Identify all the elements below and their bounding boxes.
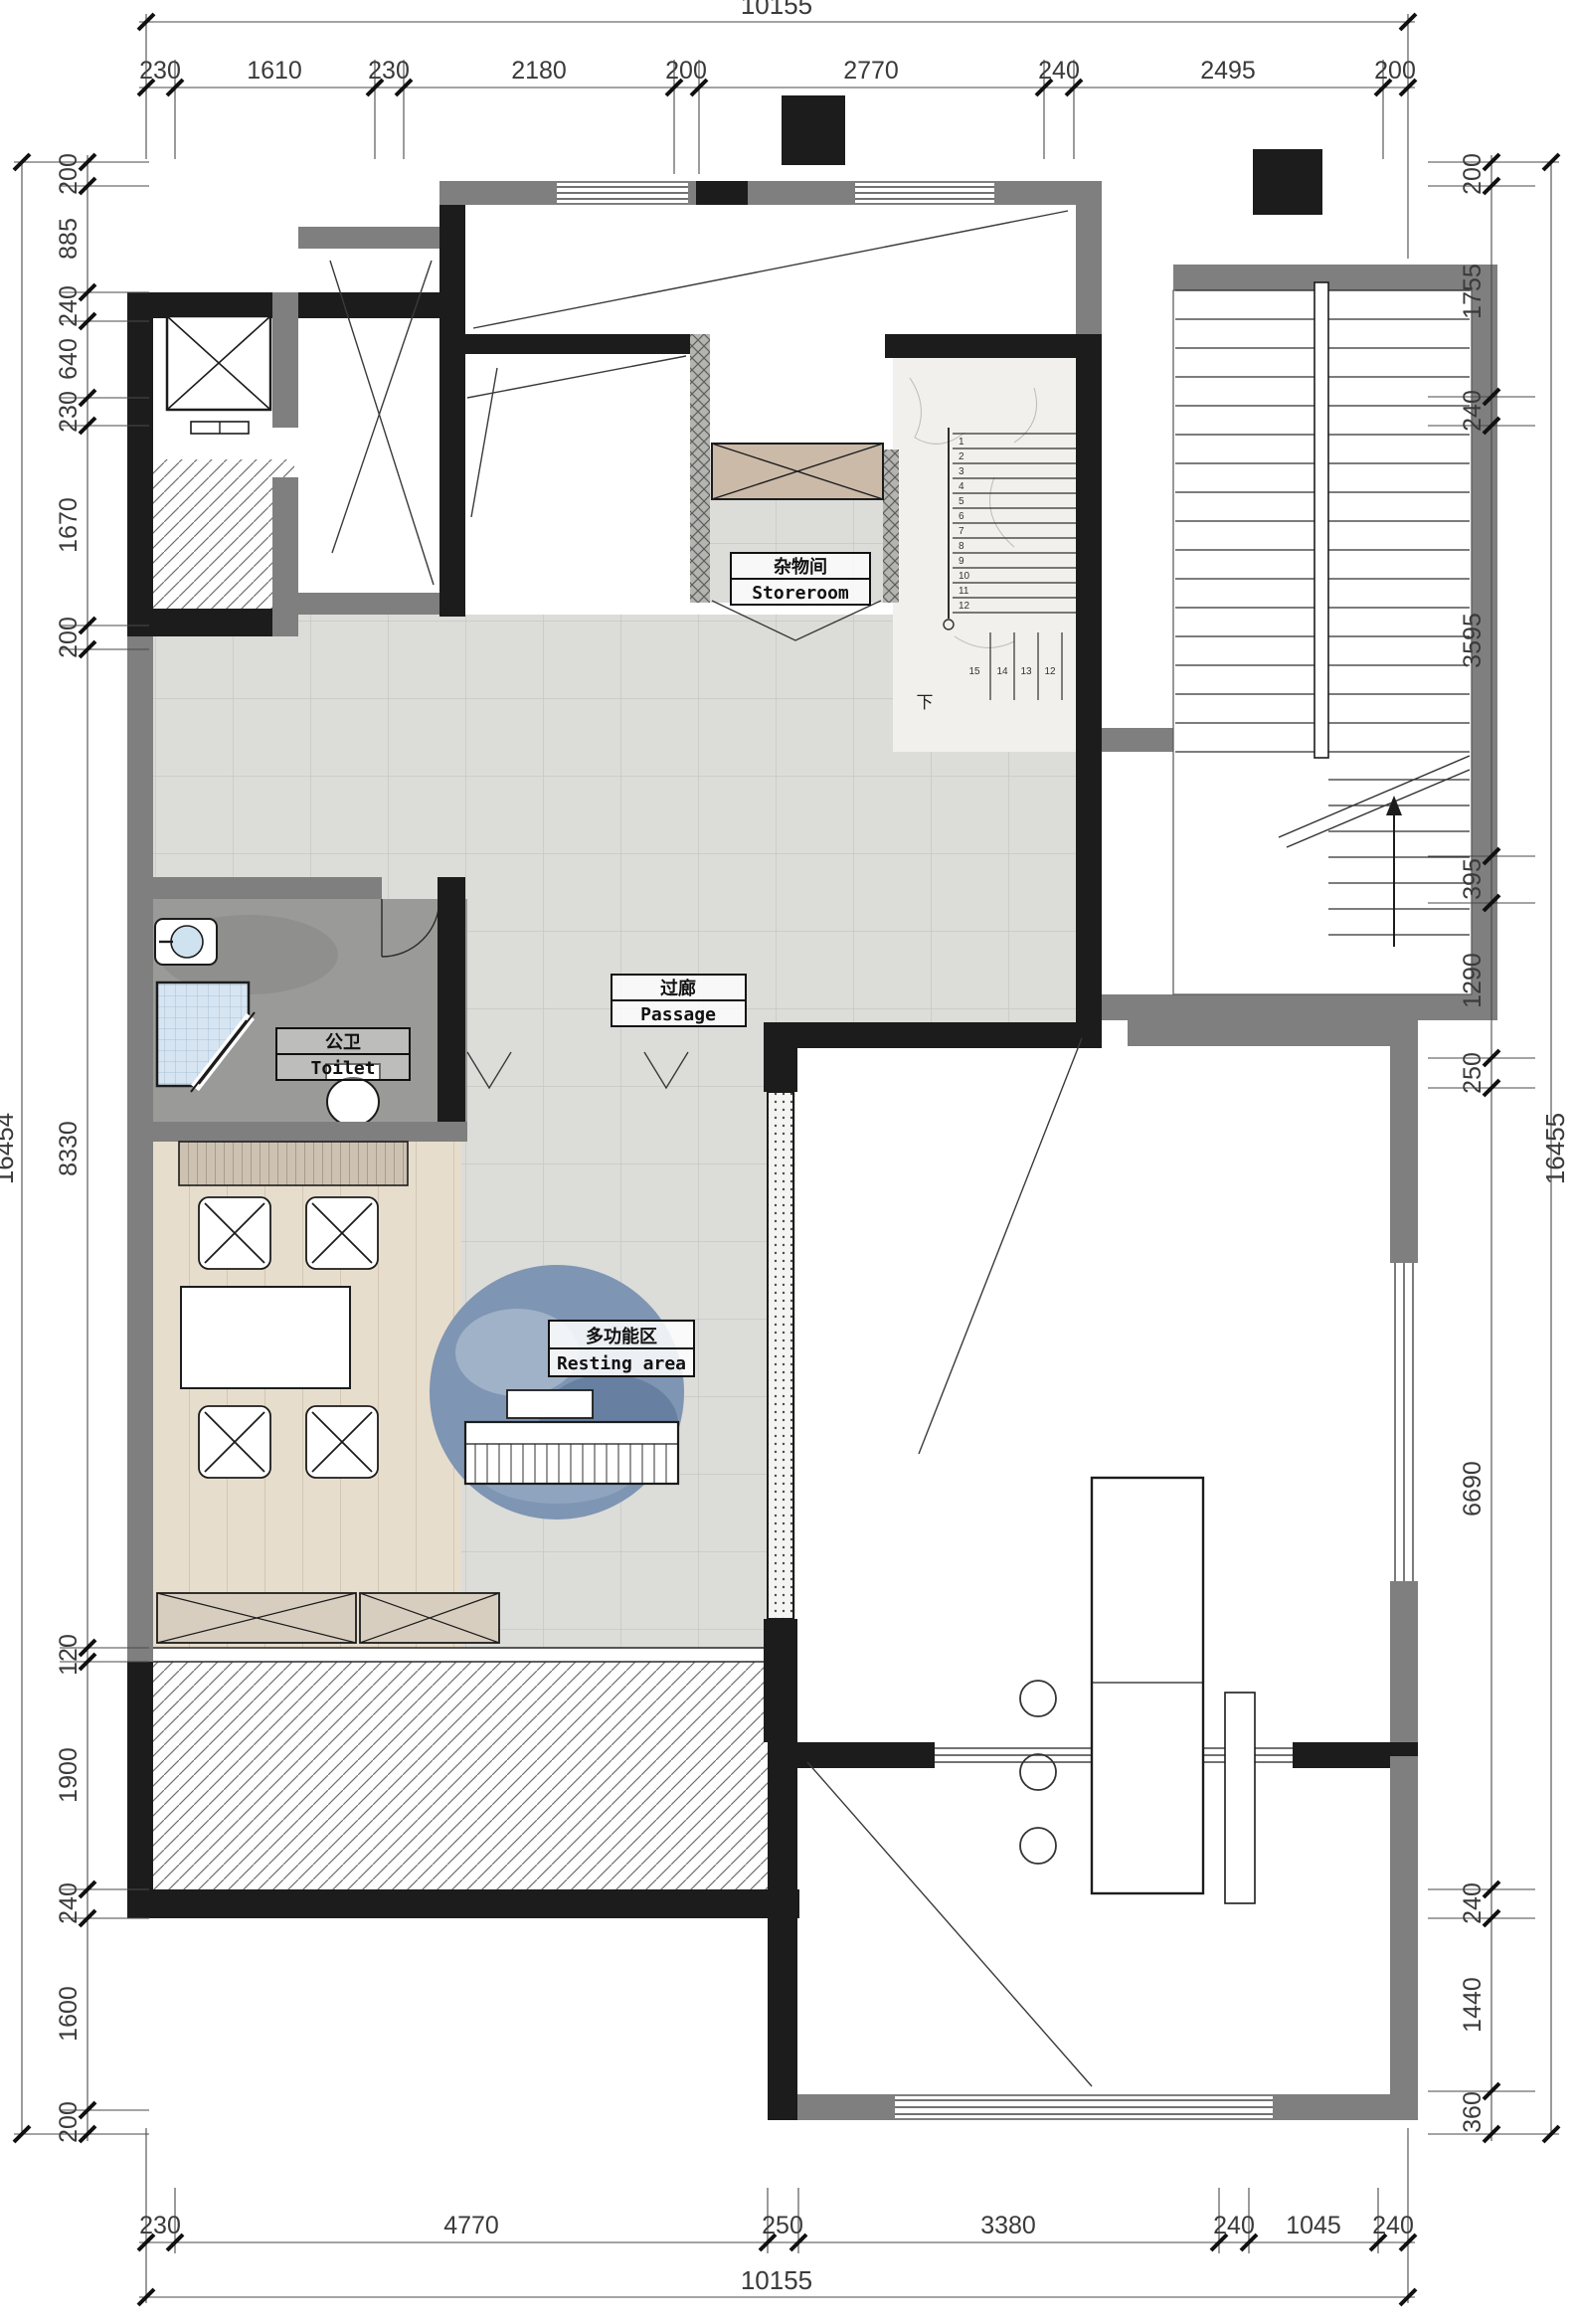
dim: 1600 — [55, 1986, 83, 2042]
stair-number: 11 — [959, 586, 969, 597]
column-top-band — [696, 181, 748, 205]
wall-stairwell-top — [1173, 265, 1497, 290]
column-top-right-float — [1253, 149, 1322, 215]
public-stairwell — [1173, 282, 1472, 994]
dim: 200 — [55, 2101, 83, 2143]
label-resting: 多功能区 Resting area — [549, 1321, 694, 1376]
toilet-bowl — [327, 1078, 379, 1126]
island-side-counter — [1225, 1693, 1255, 1903]
dim: 200 — [1459, 153, 1487, 195]
passage-label-zh: 过廊 — [660, 978, 696, 998]
dim: 395 — [1459, 858, 1487, 900]
stair-down-marker: 下 — [917, 693, 934, 712]
dim: 1610 — [247, 57, 302, 85]
dim: 3595 — [1459, 613, 1487, 668]
dim-right-total: 16455 — [1540, 1113, 1570, 1184]
label-storeroom: 杂物间 Storeroom — [731, 553, 870, 605]
dim: 230 — [139, 57, 181, 85]
stair-number: 3 — [959, 466, 964, 477]
wall-left-lower — [127, 1662, 153, 1918]
wall-tallroom-right — [439, 181, 465, 593]
dim: 2495 — [1200, 57, 1256, 85]
stair-number: 1 — [959, 437, 964, 447]
stair-number-lower: 12 — [1044, 666, 1056, 677]
dim: 200 — [1374, 57, 1416, 85]
door-line-bottomright — [807, 1762, 1092, 2086]
dim: 240 — [1459, 1882, 1487, 1924]
stair-number-lower: 15 — [968, 666, 980, 677]
dim: 2770 — [843, 57, 899, 85]
dimension-labels-left: 16454 200 885 240 640 230 1670 200 8330 … — [0, 153, 83, 2143]
stair-number: 12 — [959, 601, 970, 612]
dim: 1440 — [1459, 1977, 1487, 2033]
dresser-striped-cabinet — [179, 1142, 408, 1185]
dim: 250 — [1459, 1052, 1487, 1094]
floor-plan-drawing: 1 2 3 4 5 6 7 8 9 10 11 12 15 14 13 12 下 — [0, 0, 1576, 2324]
floor-plan-page: 1 2 3 4 5 6 7 8 9 10 11 12 15 14 13 12 下 — [0, 0, 1576, 2324]
stool — [1020, 1828, 1056, 1864]
dim: 120 — [55, 1634, 83, 1676]
dim: 4770 — [443, 2212, 499, 2239]
stair-number: 5 — [959, 496, 964, 507]
wall-left-upper — [127, 292, 153, 636]
dim: 240 — [1372, 2212, 1414, 2239]
sink-basin — [171, 926, 203, 958]
dim: 250 — [762, 2212, 803, 2239]
dim: 240 — [55, 285, 83, 327]
stairwell-center-rail — [1314, 282, 1328, 758]
resting-label-zh: 多功能区 — [586, 1326, 657, 1346]
dim: 1290 — [1459, 953, 1487, 1008]
wall-bottom-mid-vertical — [768, 1742, 797, 2120]
dim: 240 — [55, 1882, 83, 1924]
column-glazing-bottom — [764, 1619, 797, 1742]
dim: 200 — [55, 153, 83, 195]
dim-bottom-total: 10155 — [741, 2265, 812, 2295]
toilet-label-en: Toilet — [310, 1058, 375, 1079]
dim: 200 — [55, 617, 83, 658]
table — [181, 1287, 350, 1388]
kitchen-island — [1092, 1478, 1203, 1893]
dim: 200 — [665, 57, 707, 85]
wall-shaft-right-b — [272, 477, 298, 636]
storeroom-label-en: Storeroom — [752, 583, 849, 604]
dim: 2180 — [511, 57, 567, 85]
toilet-room — [153, 899, 467, 1126]
dim-top-total: 10155 — [741, 0, 812, 20]
dim: 640 — [55, 338, 83, 380]
column-tallroom-corner — [439, 591, 465, 617]
dim: 230 — [139, 2212, 181, 2239]
dimension-labels-bottom: 10155 230 4770 250 3380 240 1045 240 — [139, 2212, 1414, 2295]
wall-toilet-top — [153, 877, 382, 899]
wall-stair-right — [1076, 334, 1102, 752]
dim: 1670 — [55, 497, 83, 553]
stair-number: 10 — [959, 571, 970, 582]
door-line-midroom-1 — [467, 356, 686, 398]
wall-toilet-bottom — [153, 1122, 467, 1142]
dim: 1900 — [55, 1747, 83, 1803]
dim: 230 — [55, 391, 83, 433]
elevator — [167, 316, 270, 434]
wall-left-mid — [127, 636, 153, 1662]
stair-number: 7 — [959, 526, 964, 537]
dim: 240 — [1213, 2212, 1255, 2239]
wall-landing — [1102, 728, 1173, 752]
wall-storeroom-right-hatch — [883, 449, 899, 603]
wall-top-band — [439, 181, 1102, 205]
wall-midroom-top — [439, 334, 710, 354]
wall-bigroom-top — [795, 1022, 1102, 1048]
dimension-labels-top: 10155 230 1610 230 2180 200 2770 240 249… — [139, 0, 1416, 85]
terrace-edge-lines — [153, 1648, 768, 1662]
terrace-hatch — [153, 1662, 768, 1889]
glazed-partition — [768, 1092, 793, 1619]
dim: 230 — [368, 57, 410, 85]
stool — [1020, 1681, 1056, 1716]
label-passage: 过廊 Passage — [612, 975, 746, 1026]
door-line-bigroom — [919, 1038, 1082, 1454]
column-glazing-top — [764, 1022, 797, 1092]
piano-bench — [507, 1390, 593, 1418]
dim: 3380 — [980, 2212, 1036, 2239]
stair-number-lower: 13 — [1020, 666, 1032, 677]
stair-number: 4 — [959, 481, 964, 492]
wall-midroom-right-hatch — [690, 334, 710, 603]
wall-bottom-left — [127, 1889, 799, 1918]
dim: 1755 — [1459, 264, 1487, 319]
wall-passage-right — [1076, 752, 1102, 1046]
dim: 360 — [1459, 2091, 1487, 2133]
dim: 1045 — [1286, 2212, 1341, 2239]
wall-topright-room-right — [1076, 205, 1102, 334]
dim: 8330 — [55, 1121, 83, 1176]
stair-number: 9 — [959, 556, 964, 567]
passage-label-en: Passage — [640, 1004, 716, 1025]
wall-stairwell-bottom — [1102, 994, 1497, 1020]
stairwell-break-line — [1279, 756, 1470, 847]
dim: 240 — [1038, 57, 1080, 85]
storeroom-label-zh: 杂物间 — [774, 556, 827, 577]
column-top-float — [782, 95, 845, 165]
stair-number-lower: 14 — [996, 666, 1008, 677]
piano-keyboard — [465, 1422, 678, 1484]
dim: 885 — [55, 218, 83, 260]
stair-number: 2 — [959, 451, 964, 462]
door-line-midroom-2 — [471, 368, 497, 517]
wall-bigroom-bottom-a — [795, 1742, 935, 1768]
wall-bottomright-right — [1390, 1756, 1418, 2120]
wall-shaft-right-a — [272, 292, 298, 428]
dim: 240 — [1459, 390, 1487, 432]
wall-toilet-right — [438, 877, 465, 1122]
resting-label-en: Resting area — [557, 1353, 686, 1374]
stair-number: 6 — [959, 511, 964, 522]
door-line-topright-room — [473, 211, 1068, 328]
wall-stair-top — [885, 334, 1102, 358]
dim: 6690 — [1459, 1461, 1487, 1517]
wall-bigroom-top-grey — [1128, 1020, 1390, 1046]
stairwell-treads-lower — [1328, 780, 1470, 935]
stair-number: 8 — [959, 541, 964, 552]
toilet-label-zh: 公卫 — [325, 1032, 361, 1052]
dim-left-total: 16454 — [0, 1113, 19, 1184]
label-toilet: 公卫 Toilet — [276, 1028, 410, 1080]
